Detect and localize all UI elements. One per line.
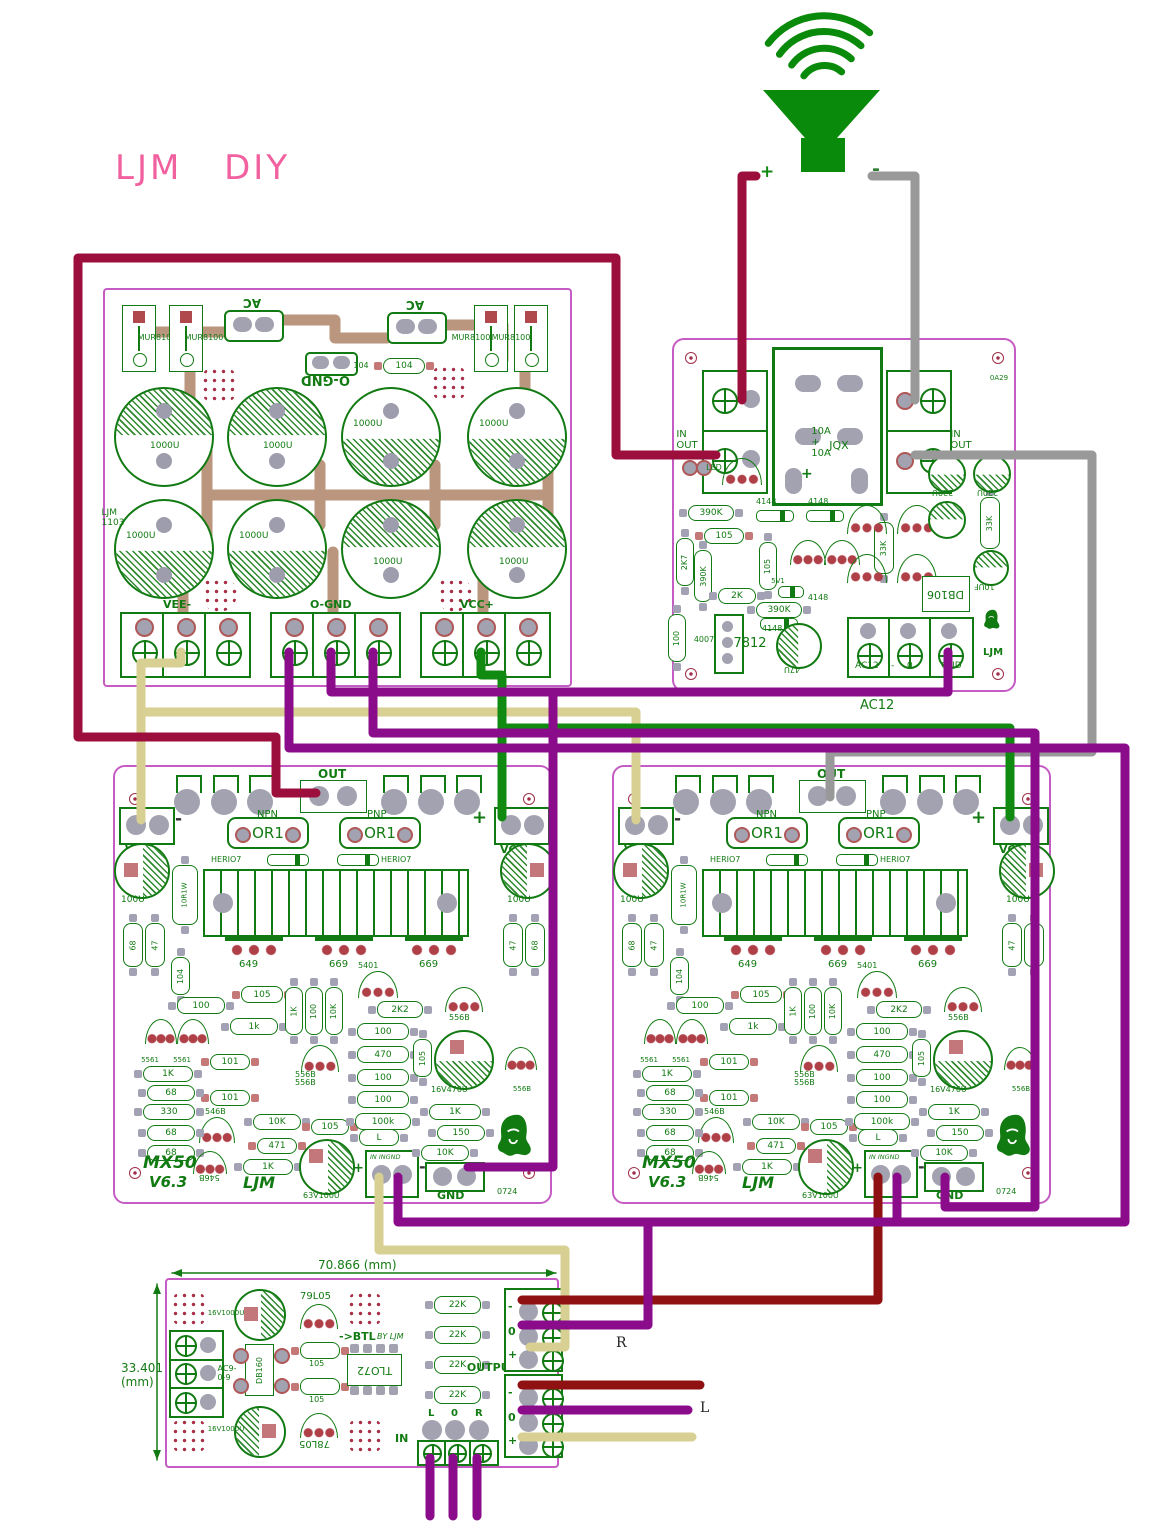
resistor-470: 470 [357, 1046, 409, 1063]
cap-105 [300, 1378, 340, 1395]
portrait-icon [988, 1111, 1044, 1167]
cap-100u-label: 100U [620, 895, 644, 905]
vcc-plus: + [971, 807, 986, 828]
cap-100u [114, 843, 170, 899]
resistor-68: 68 [1024, 923, 1044, 967]
terminal-0-label: 0 [907, 661, 913, 671]
regulator-7812-label: 7812 [742, 617, 758, 669]
cap-16v470u [933, 1030, 993, 1090]
cap-10uf [973, 550, 1009, 586]
resistor-100: 100 [856, 1023, 908, 1040]
resistor-100: 100 [676, 997, 724, 1014]
protection-board: IN OUT + 10A + 10A JQX IN OUT 0A29 33K 3 [672, 338, 1016, 692]
resistor-100: 100 [357, 1069, 409, 1086]
left-channel-label: L [700, 1400, 709, 1416]
filter-cap: 1000U [227, 499, 327, 599]
in-ingnd-label: IN INGND [370, 1153, 401, 1161]
ac12-wire-label: AC12 [860, 698, 894, 713]
ljm-label: LJM [742, 1173, 774, 1192]
diode-label: MUR8100 [505, 305, 517, 370]
resistor-68: 68 [646, 1125, 694, 1141]
transistor-556b-label: 556B [515, 1071, 529, 1107]
vcc-connector [993, 807, 1049, 845]
resistor-68: 68 [147, 1125, 195, 1141]
resistor-68: 68 [646, 1085, 694, 1101]
resistor-33k: 33K [980, 497, 1000, 549]
page-title: LJM DIY [115, 148, 290, 188]
resistor-100: 100 [357, 1023, 409, 1040]
resistor-1k: 1k [230, 1018, 278, 1035]
cap-101: 101 [210, 1090, 250, 1106]
transistor-669-label: 669 [828, 959, 847, 970]
board-code: 0A29 [994, 360, 1004, 396]
relay: + 10A + 10A JQX [772, 347, 883, 506]
filter-cap: 1000U [467, 387, 567, 487]
cap-105-label: 105 [309, 1359, 324, 1368]
resistor-100: 100 [856, 1091, 908, 1108]
portrait-icon [980, 608, 1006, 634]
out-label: OUT [318, 767, 346, 781]
input-board: 16V1000U 16V1000U AC9-0-9 DB160 79L05 10… [165, 1278, 559, 1468]
transistor-546b [199, 1117, 235, 1143]
input-plus: + [852, 1161, 863, 1176]
transistor-5401-label: 5401 [358, 961, 378, 970]
transistor-556b-label: 556B556B [295, 1071, 316, 1087]
resistor-100k: 100k [355, 1113, 411, 1130]
transistor-5561 [644, 1019, 676, 1044]
gnd-connector [425, 1162, 485, 1192]
ic-tl072: TLO72 [347, 1354, 402, 1386]
cap-101: 101 [709, 1054, 749, 1070]
terminal-gnd-label: GND [941, 661, 962, 671]
cap-104: 104 [383, 358, 425, 374]
resistor-68: 68 [123, 923, 143, 967]
lor-r: R [475, 1408, 483, 1419]
resistor-2k2: 2K2 [876, 1001, 922, 1018]
cap-16v470u [434, 1030, 494, 1090]
resistor-100: 100 [357, 1091, 409, 1108]
resistor-1k: 1k [729, 1018, 777, 1035]
resistor-10k: 10K [752, 1114, 800, 1130]
emitter-resistor-or1: OR1 [726, 817, 808, 849]
vcc-terminal [420, 612, 551, 678]
ac-connector [387, 312, 447, 344]
transistor-5401-label: 5401 [857, 961, 877, 970]
relay-plus: + [801, 466, 813, 482]
bridge-db160: DB160 [245, 1344, 274, 1396]
resistor-47: 47 [145, 923, 165, 967]
resistor-100: 100 [177, 997, 225, 1014]
input-plus: + [353, 1161, 364, 1176]
resistor-390k: 390K [756, 602, 802, 618]
diode-her107 [766, 854, 808, 866]
transistor-556b-label: 556B [948, 1013, 969, 1022]
transistor-5401 [857, 971, 897, 998]
ac909-terminal [169, 1330, 224, 1418]
emitter-resistor-or1: OR1 [838, 817, 920, 849]
resistor-2k7: 2K7 [676, 538, 694, 586]
heatsink [702, 869, 968, 937]
transistor-546b [698, 1117, 734, 1143]
transistor-669-label: 669 [419, 959, 438, 970]
resistor-1k: 1K [928, 1104, 980, 1120]
pad-cluster [345, 1289, 385, 1329]
ljm-label: LJM [986, 634, 1000, 670]
cap-220u-label: 220U [932, 488, 953, 497]
reg-79l05 [300, 1304, 338, 1329]
by-ljm-label: BY LJM [377, 1332, 404, 1341]
resistor-100: 100 [668, 614, 686, 662]
psu-board: MUR8100 MUR8100 MUR8100 MUR8100 AC AC O-… [103, 288, 572, 687]
cap-100u [613, 843, 669, 899]
resistor-68: 68 [525, 923, 545, 967]
heatsink [203, 869, 469, 937]
speaker-icon [735, 12, 910, 177]
vcc-plus: + [472, 807, 487, 828]
transistor-649-label: 649 [738, 959, 757, 970]
right-channel-label: R [616, 1335, 627, 1351]
bridge-db106: DB106 [922, 576, 970, 612]
emitter-resistor-or1: OR1 [227, 817, 309, 849]
resistor-1k: 1K [143, 1066, 193, 1082]
cap-100u [999, 843, 1055, 899]
in-ingnd-label: IN INGND [869, 1153, 900, 1161]
cap-105: 105 [912, 1039, 931, 1077]
cap-100u-label: 100U [121, 895, 145, 905]
resistor-1k: 1K [429, 1104, 481, 1120]
wiring-diagram: LJM DIY + - [0, 0, 1162, 1531]
transistor [790, 540, 826, 565]
transistor-556b [944, 987, 982, 1012]
resistor-470: 470 [856, 1046, 908, 1063]
transistor-546b-label: 546B [698, 1173, 719, 1182]
vee-connector [119, 807, 175, 845]
cap-471: 471 [257, 1138, 297, 1154]
link-l: L [359, 1129, 399, 1146]
cap-47u [776, 623, 822, 669]
resistor-22k: 22K [434, 1296, 481, 1314]
speaker-minus-label: - [872, 158, 880, 180]
resistor-1k: 1K [642, 1066, 692, 1082]
relay-rating: 10A + 10A [813, 390, 829, 495]
cap-100u [500, 843, 556, 899]
output-label: OUTPUT [485, 1336, 499, 1398]
cap-104: 104 [670, 957, 689, 995]
output-terminal-l: - 0 + [504, 1374, 563, 1458]
output-terminal-r: - 0 + [504, 1288, 563, 1372]
ognd-terminal [270, 612, 401, 678]
reg-79l05-label: 79L05 [300, 1291, 331, 1302]
ac-label: AC [406, 298, 424, 312]
transistor-546b-label: 546B [199, 1173, 220, 1182]
lor-0: 0 [451, 1408, 458, 1419]
transistor-556b-label: 556B556B [794, 1071, 815, 1087]
terminal-ac12-label: AC12 [855, 661, 879, 671]
gnd-label: GND [437, 1189, 464, 1202]
cap-63v100u [299, 1139, 355, 1195]
vee-minus: - [175, 809, 182, 829]
cap-471: 471 [756, 1138, 796, 1154]
dim-height-label: 33.401 (mm) [134, 1320, 150, 1430]
zener-diode [778, 586, 804, 598]
resistor-330: 330 [143, 1104, 195, 1120]
reg-78l05-label: 78L05 [299, 1438, 330, 1449]
version-label: V6.3 [149, 1173, 187, 1191]
resistor-2k2: 2K2 [377, 1001, 423, 1018]
resistor-10k: 10K [421, 1145, 469, 1161]
cap-101: 101 [210, 1054, 250, 1070]
resistor-68: 68 [622, 923, 642, 967]
cap-105 [300, 1342, 340, 1359]
cap-100u-label: 100U [1006, 895, 1030, 905]
ac909-label: AC9-0-9 [221, 1338, 233, 1408]
transistor-669-label: 669 [918, 959, 937, 970]
resistor-100: 100 [804, 987, 822, 1035]
pad-cluster [345, 1416, 385, 1456]
cap-220u [928, 501, 966, 539]
transistor-5561 [177, 1019, 209, 1044]
cap-47u-label: 47U [784, 665, 800, 674]
diode-her107-label: HERIO7 [880, 855, 910, 864]
diode-her107-label: HERIO7 [211, 855, 241, 864]
resistor-2k: 2K [718, 588, 756, 604]
transistor-546b-label: 546B [704, 1107, 725, 1116]
relay-model: JQX [831, 405, 847, 485]
ognd-terminal-label: O-GND [310, 598, 352, 611]
diode-4148 [756, 510, 794, 522]
transistor-5561 [145, 1019, 177, 1044]
resistor-1k: 1K [784, 987, 802, 1035]
transistor-556b-label: 556B [449, 1013, 470, 1022]
board-side-text: LJM 1103 [106, 470, 120, 565]
portrait-icon [489, 1111, 545, 1167]
resistor-10k: 10K [920, 1145, 968, 1161]
resistor-330: 330 [642, 1104, 694, 1120]
brand-text: LJM [115, 148, 182, 188]
out-connector [300, 780, 367, 813]
diode-her107 [337, 854, 379, 866]
diy-text: DIY [224, 148, 290, 188]
pad-cluster [169, 1289, 209, 1329]
cap-105: 105 [704, 528, 744, 544]
lor-connector [417, 1440, 499, 1466]
transistor-556b [505, 1047, 537, 1070]
diode-4007-label: 4007 [698, 618, 710, 660]
resistor-68: 68 [147, 1085, 195, 1101]
btl-label: ->BTL [339, 1330, 376, 1343]
filter-cap: 1000U [227, 387, 327, 487]
amp-board-left: OUT - VEE + VCC NPN PNP OR1 OR1 HERIO7 H… [113, 765, 552, 1204]
gnd-label: GND [936, 1189, 963, 1202]
input-connector: IN INGND [365, 1150, 419, 1198]
board-code: 0724 [497, 1187, 517, 1196]
filter-cap: 1000U [467, 499, 567, 599]
diode-label: MUR8100 [150, 305, 164, 370]
cap-105-label: 105 [309, 1395, 324, 1404]
input-connector: IN INGND [864, 1150, 918, 1198]
resistor-10k: 10K [325, 987, 343, 1035]
resistor-100: 100 [305, 987, 323, 1035]
cap-105: 105 [740, 986, 782, 1003]
transistor-556b [800, 1045, 838, 1072]
cap-105: 105 [311, 1119, 349, 1135]
vcc-terminal-label: VCC+ [460, 598, 494, 611]
model-label: MX50 [642, 1153, 696, 1173]
cap-63v100u [798, 1139, 854, 1195]
model-label: MX50 [143, 1153, 197, 1173]
resistor-10r1w: 10R1W [671, 865, 697, 925]
pad-cluster [169, 1416, 209, 1456]
filter-cap: 1000U [114, 387, 214, 487]
transistor-5401 [358, 971, 398, 998]
ac12-terminal: AC12 - 0 GND [847, 617, 974, 678]
diode-her107-label: HERIO7 [381, 855, 411, 864]
vee-minus: - [674, 809, 681, 829]
out-label: OUT [817, 767, 845, 781]
diode-4148-label: 4148 [808, 497, 828, 506]
pad-cluster [429, 363, 469, 403]
diode-4148-label: 4148 [812, 580, 824, 614]
filter-cap: 1000U [341, 499, 441, 599]
cap-104-label: 104 [355, 350, 367, 380]
out-connector [799, 780, 866, 813]
resistor-150: 150 [936, 1125, 984, 1141]
transistor-649-label: 649 [239, 959, 258, 970]
cap-105: 105 [810, 1119, 848, 1135]
led-label: LED [708, 452, 720, 482]
vcc-connector [494, 807, 550, 845]
diode-label: MUR8100 [197, 305, 211, 370]
resistor-100: 100 [856, 1069, 908, 1086]
resistor-22k: 22K [434, 1386, 481, 1404]
diode-label: MUR8100 [465, 305, 477, 370]
resistor-47: 47 [644, 923, 664, 967]
dim-width-label: 70.866 (mm) [318, 1258, 397, 1272]
speaker-plus-label: + [760, 162, 774, 182]
cap-105: 105 [413, 1039, 432, 1077]
cap-104: 104 [171, 957, 190, 995]
in-label: IN [395, 1432, 408, 1445]
left-inout-label: IN OUT [680, 386, 694, 494]
amp-board-right: OUT - VEE + VCC NPN PNP OR1 OR1 HERIO7 H… [612, 765, 1051, 1204]
link-l: L [858, 1129, 898, 1146]
resistor-10k: 10K [253, 1114, 301, 1130]
filter-cap: 1000U [341, 387, 441, 487]
vee-terminal-label: VEE- [163, 598, 191, 611]
transistor-5561 [676, 1019, 708, 1044]
ac-label: AC [243, 296, 261, 310]
diode-her107 [836, 854, 878, 866]
transistor-556b [301, 1045, 339, 1072]
resistor-100k: 100k [854, 1113, 910, 1130]
cap-101: 101 [709, 1090, 749, 1106]
diode-4148-label: 4148 [756, 497, 776, 506]
resistor-10k: 10K [824, 987, 842, 1035]
version-label: V6.3 [648, 1173, 686, 1191]
cap-10uf-label: 10UF [974, 582, 995, 591]
vee-terminal [120, 612, 251, 678]
resistor-390k: 390K [688, 505, 734, 521]
resistor-47: 47 [503, 923, 523, 967]
resistor-150: 150 [437, 1125, 485, 1141]
resistor-1k: 1K [285, 987, 303, 1035]
cap-220u-label: 220U [977, 488, 998, 497]
diode-her107 [267, 854, 309, 866]
emitter-resistor-or1: OR1 [339, 817, 421, 849]
cap-105: 105 [241, 986, 283, 1003]
transistor-669-label: 669 [329, 959, 348, 970]
board-code: 0724 [996, 1187, 1016, 1196]
transistor-556b [1004, 1047, 1036, 1070]
lor-l: L [428, 1408, 434, 1419]
diode-4148 [806, 510, 844, 522]
transistor-546b-label: 546B [205, 1107, 226, 1116]
cap-63v100u-label: 63V100U [303, 1191, 340, 1200]
ognd-top-label: O-GND [301, 372, 350, 387]
ljm-label: LJM [243, 1173, 275, 1192]
diode-her107-label: HERIO7 [710, 855, 740, 864]
terminal-dash-label: - [891, 661, 894, 671]
cap-63v100u-label: 63V100U [802, 1191, 839, 1200]
reg-78l05 [300, 1413, 338, 1438]
resistor-47: 47 [1002, 923, 1022, 967]
cap-16v470u-label: 16V470U [930, 1085, 967, 1094]
transistor-556b-label: 556B [1014, 1071, 1028, 1107]
resistor-22k: 22K [434, 1326, 481, 1344]
transistor [847, 505, 887, 534]
gnd-connector [924, 1162, 984, 1192]
cap-100u-label: 100U [507, 895, 531, 905]
filter-cap: 1000U [114, 499, 214, 599]
ac-connector [224, 310, 284, 342]
cap-16v470u-label: 16V470U [431, 1085, 468, 1094]
transistor-556b [445, 987, 483, 1012]
resistor-10r1w: 10R1W [172, 865, 198, 925]
vee-connector [618, 807, 674, 845]
